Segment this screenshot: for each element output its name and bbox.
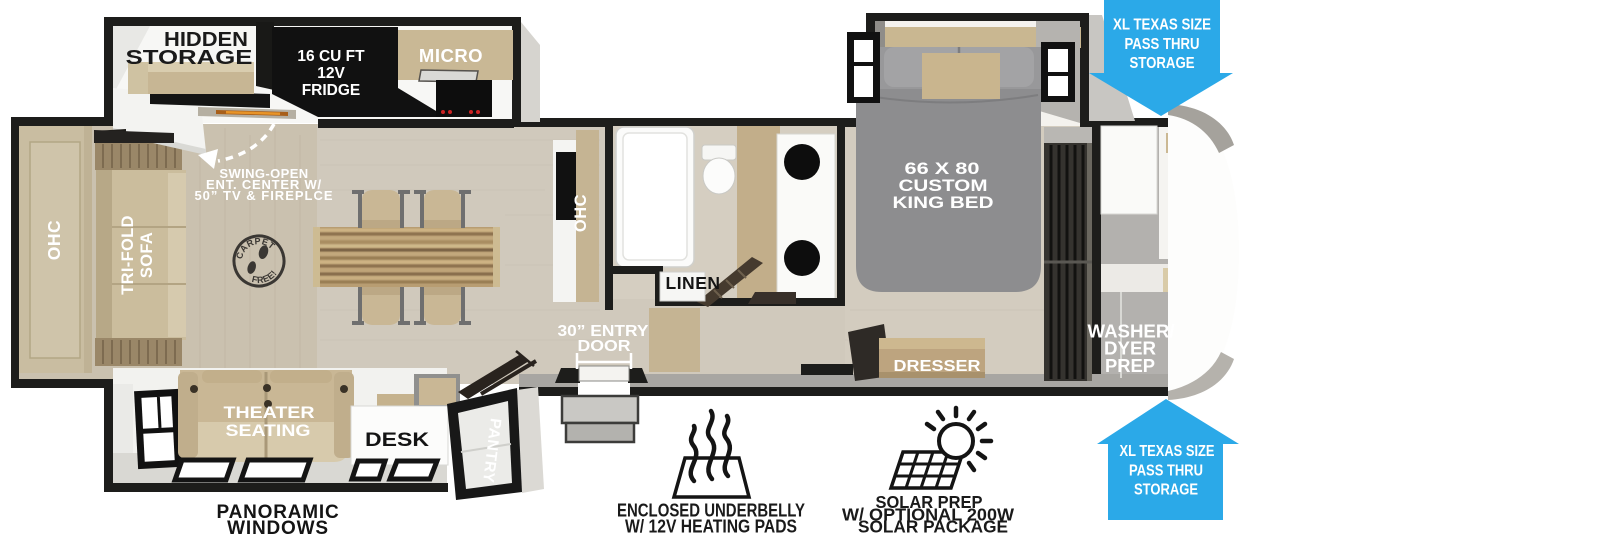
svg-text:PREP: PREP [1105, 355, 1155, 376]
svg-text:WINDOWS: WINDOWS [227, 518, 329, 535]
svg-text:SOLAR PACKAGE: SOLAR PACKAGE [858, 517, 1008, 535]
svg-text:SEATING: SEATING [226, 422, 311, 440]
svg-text:STORAGE: STORAGE [1130, 55, 1195, 72]
svg-text:FRIDGE: FRIDGE [302, 82, 361, 99]
svg-text:DRESSER: DRESSER [894, 358, 981, 375]
svg-text:DESK: DESK [365, 430, 429, 451]
svg-text:16 CU FT: 16 CU FT [297, 48, 365, 65]
svg-text:STORAGE: STORAGE [1134, 482, 1198, 499]
svg-text:LINEN: LINEN [666, 273, 721, 293]
svg-text:PASS THRU: PASS THRU [1129, 463, 1203, 480]
svg-text:THEATER: THEATER [224, 404, 315, 422]
svg-text:KING BED: KING BED [893, 193, 994, 212]
svg-text:MICRO: MICRO [419, 45, 483, 66]
svg-text:DOOR: DOOR [578, 338, 631, 355]
svg-text:W/ 12V HEATING PADS: W/ 12V HEATING PADS [625, 517, 797, 535]
svg-text:PASS THRU: PASS THRU [1125, 36, 1200, 53]
svg-text:STORAGE: STORAGE [126, 47, 253, 69]
svg-text:12V: 12V [317, 65, 345, 82]
svg-text:OHC: OHC [44, 220, 64, 260]
svg-text:XL TEXAS SIZE: XL TEXAS SIZE [1113, 17, 1211, 34]
svg-text:XL TEXAS SIZE: XL TEXAS SIZE [1120, 443, 1215, 460]
svg-text:TRI-FOLD: TRI-FOLD [119, 215, 137, 294]
svg-text:50” TV & FIREPLCE: 50” TV & FIREPLCE [194, 188, 333, 203]
svg-text:SOFA: SOFA [138, 232, 156, 278]
svg-text:OHC: OHC [572, 194, 590, 232]
